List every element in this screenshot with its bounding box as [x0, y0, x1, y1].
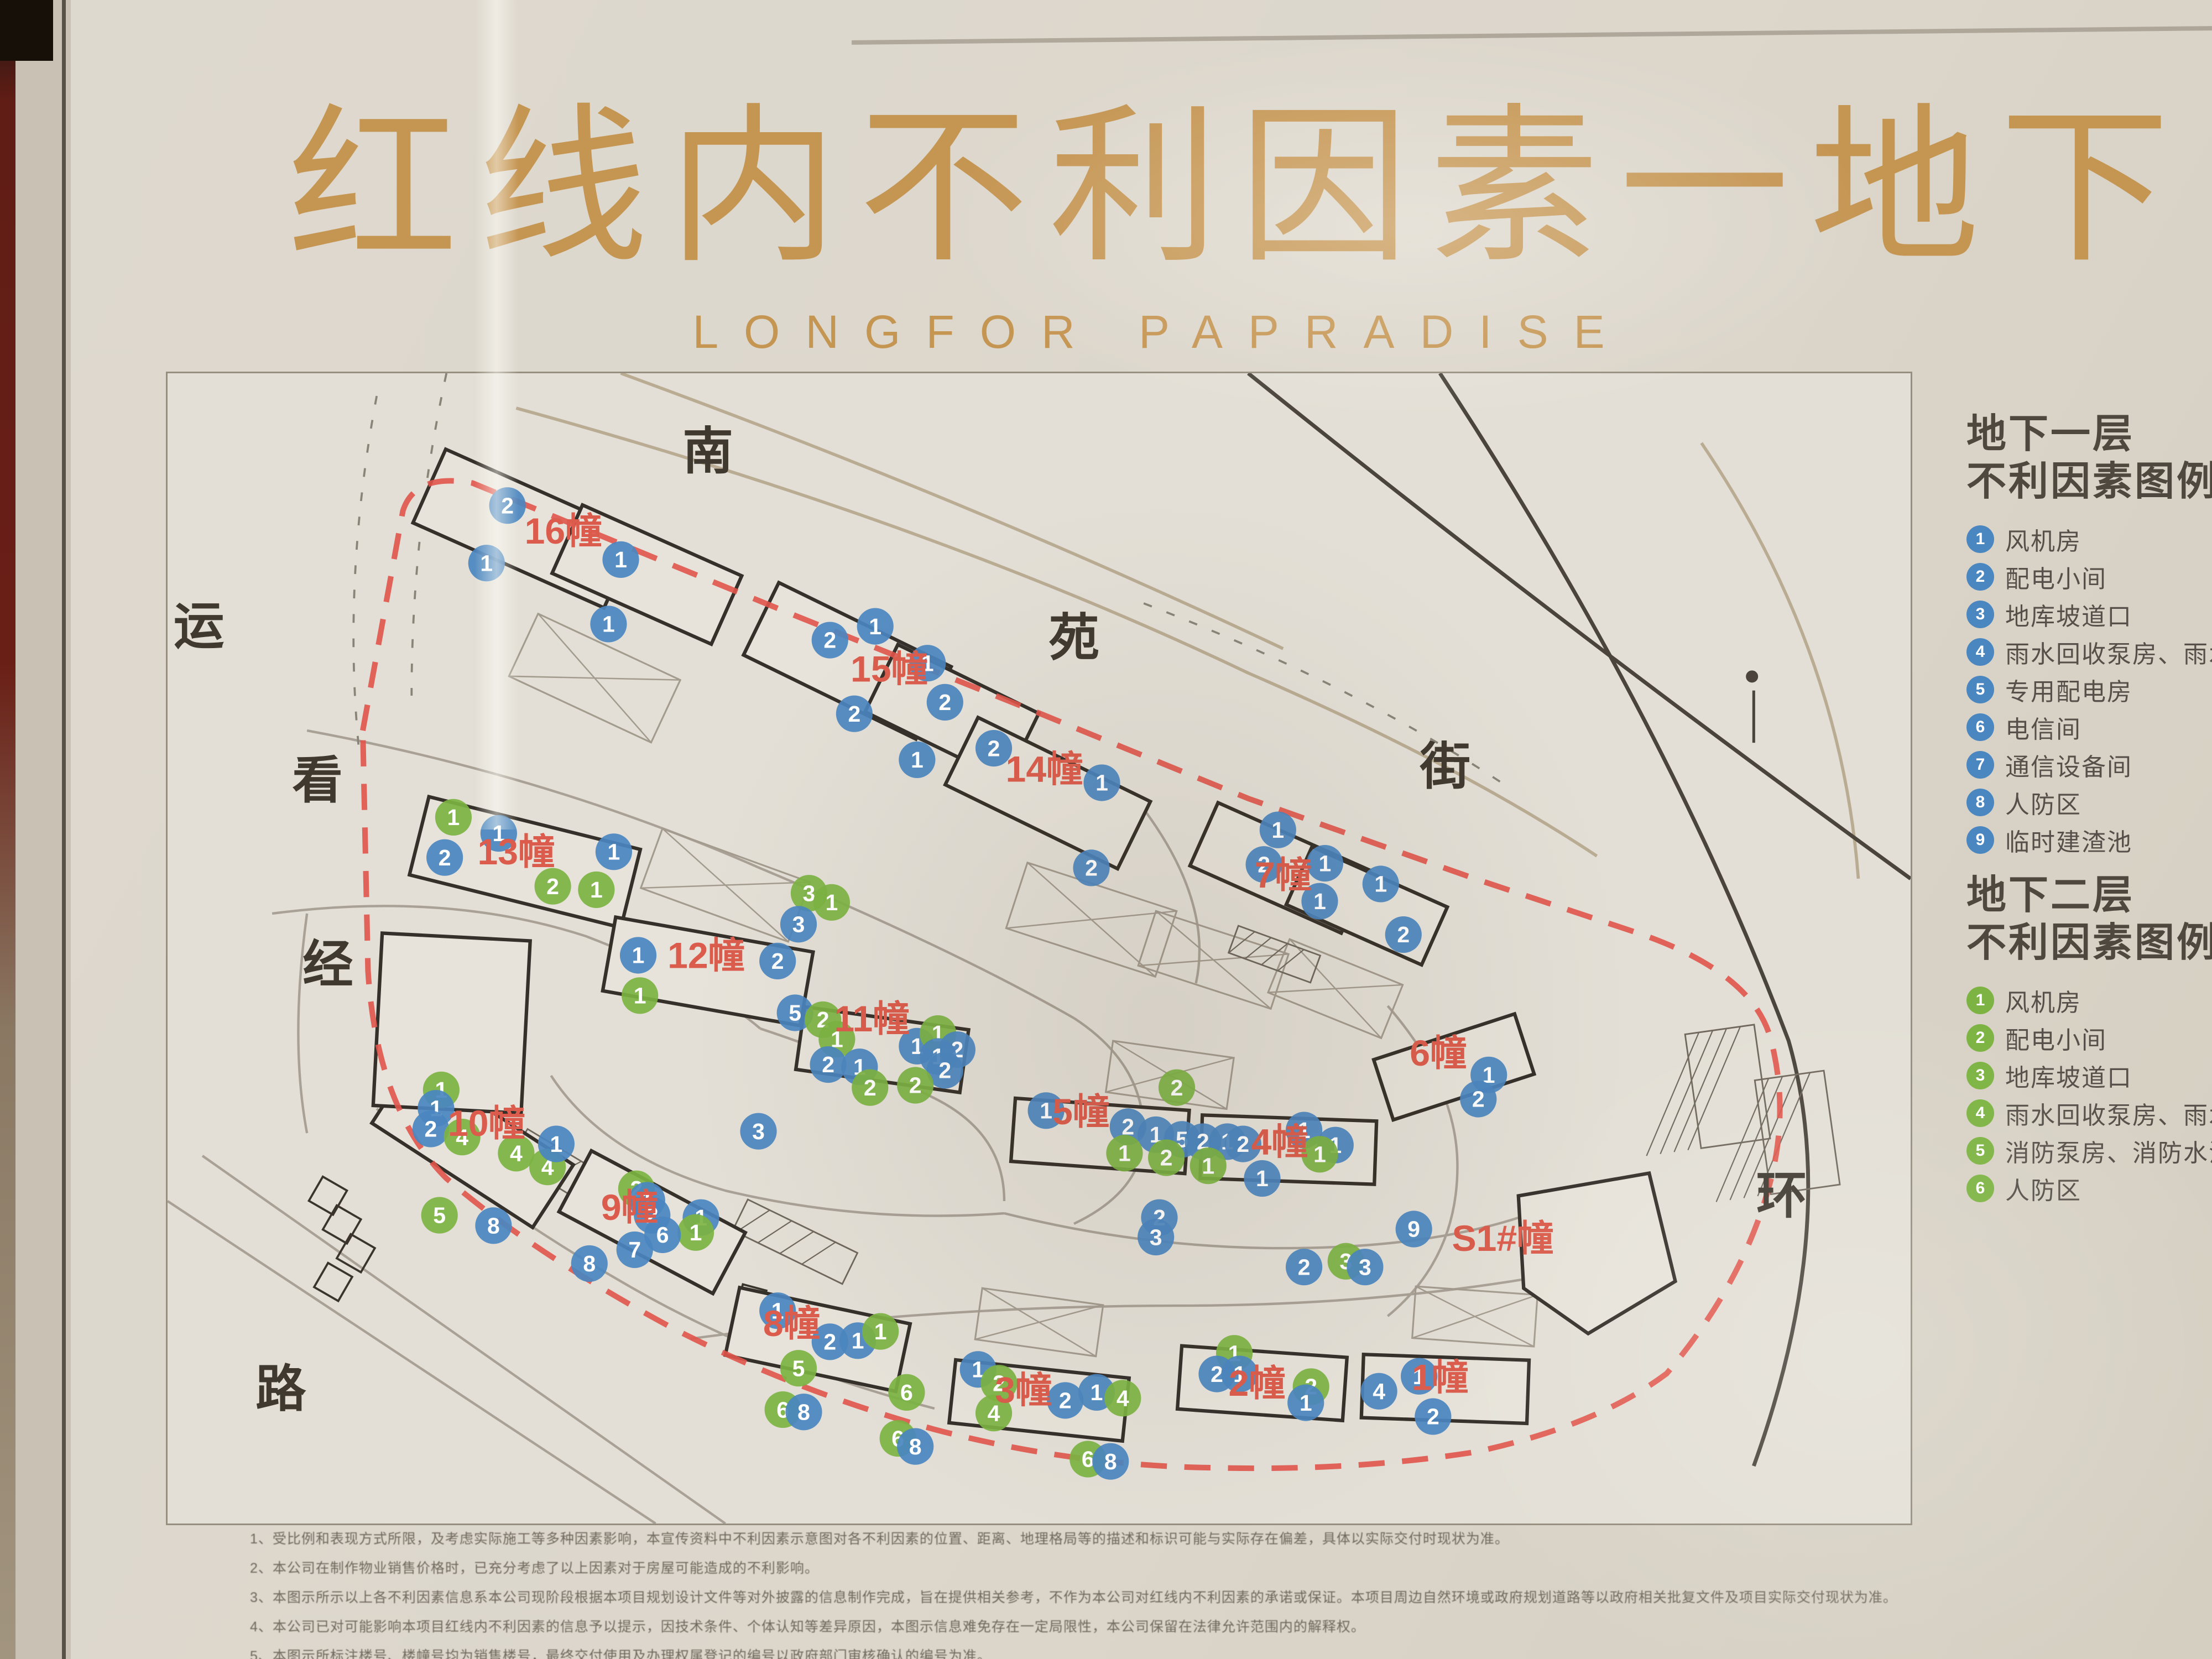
- legend2-label: 地库坡道口: [2005, 1058, 2132, 1093]
- svg-text:2: 2: [823, 1329, 836, 1355]
- svg-text:4: 4: [1117, 1385, 1129, 1411]
- lamp-symbol: [1746, 670, 1758, 743]
- legend2-number-badge: 3: [1966, 1062, 1994, 1089]
- svg-text:9: 9: [1407, 1217, 1420, 1242]
- street-label: 看: [292, 753, 342, 809]
- svg-text:1: 1: [826, 890, 838, 915]
- svg-text:1: 1: [447, 805, 460, 830]
- factor-marker: 7: [617, 1232, 653, 1268]
- street-label: 环: [1756, 1167, 1807, 1224]
- legend1-title-line1: 地下一层: [1966, 410, 2212, 458]
- building-label: S1#幢: [1452, 1218, 1553, 1259]
- legend2-title-line2: 不利因素图例: [1966, 919, 2212, 967]
- factor-marker: 8: [785, 1394, 822, 1430]
- svg-text:1: 1: [550, 1131, 562, 1157]
- svg-text:2: 2: [1237, 1131, 1249, 1157]
- svg-text:6: 6: [900, 1380, 913, 1405]
- legend1-label: 专用配电房: [2005, 672, 2132, 707]
- factor-marker: 3: [1138, 1219, 1174, 1255]
- legend1-label: 地库坡道口: [2005, 597, 2132, 632]
- factor-marker: 2: [759, 943, 796, 979]
- factor-marker: 2: [897, 1067, 933, 1103]
- site-map: 2111211221212112211313112521112122122311…: [166, 372, 1912, 1525]
- factor-marker: 2: [489, 487, 526, 524]
- street-label: 运: [174, 598, 224, 655]
- legend2-label: 配电小间: [2005, 1020, 2107, 1056]
- factor-marker: 2: [1460, 1081, 1496, 1117]
- factor-marker: 8: [475, 1207, 512, 1244]
- legend-basement-1: 地下一层 不利因素图例 1风机房2配电小间3地库坡道口4雨水回收泵房、雨水回收池…: [1966, 410, 2212, 864]
- hatched-strip: [733, 1199, 858, 1284]
- svg-text:1: 1: [608, 839, 620, 864]
- svg-text:2: 2: [1427, 1404, 1439, 1430]
- factor-marker: 1: [1106, 1135, 1142, 1171]
- svg-text:1: 1: [1300, 1390, 1312, 1416]
- svg-text:8: 8: [1104, 1449, 1117, 1474]
- svg-text:1: 1: [1271, 817, 1284, 843]
- factor-marker: 3: [780, 906, 817, 942]
- factor-marker: 9: [1396, 1211, 1432, 1247]
- note-line: 4、本公司已对可能影响本项目红线内不利因素的信息予以提示，因技术条件、个体认知等…: [250, 1620, 2208, 1635]
- factor-marker: 1: [596, 833, 632, 870]
- svg-text:2: 2: [909, 1073, 922, 1098]
- svg-text:2: 2: [823, 628, 836, 653]
- svg-text:1: 1: [911, 747, 924, 773]
- legend2-number-badge: 6: [1966, 1175, 1994, 1202]
- svg-text:2: 2: [988, 735, 1000, 761]
- svg-text:3: 3: [1359, 1254, 1371, 1280]
- factor-marker: 1: [1287, 1385, 1324, 1421]
- svg-text:4: 4: [510, 1140, 523, 1166]
- factor-marker: 8: [897, 1428, 933, 1465]
- building-label: 11幢: [834, 999, 909, 1040]
- legend2-label: 风机房: [2005, 983, 2081, 1018]
- svg-text:1: 1: [1313, 889, 1326, 914]
- svg-text:2: 2: [501, 493, 514, 518]
- legend2-number-badge: 1: [1966, 987, 1994, 1014]
- legend1-number-badge: 9: [1966, 826, 1994, 854]
- building-label: 6幢: [1410, 1033, 1467, 1074]
- svg-text:2: 2: [1085, 855, 1098, 881]
- legend2-label: 消防泵房、消防水池: [2005, 1133, 2212, 1168]
- street-label: 街: [1420, 739, 1470, 795]
- legend2-item: 2配电小间: [1966, 1024, 2212, 1052]
- legend2-item: 1风机房: [1966, 987, 2212, 1014]
- factor-marker: 5: [421, 1197, 458, 1233]
- factor-marker: 1: [622, 977, 658, 1014]
- svg-text:3: 3: [1150, 1224, 1162, 1250]
- legend2-number-badge: 2: [1966, 1024, 1994, 1052]
- building-label: 1幢: [1411, 1358, 1468, 1399]
- hatched-strip: [1229, 926, 1321, 983]
- frame-corner: [0, 0, 53, 61]
- svg-text:1: 1: [1256, 1166, 1269, 1191]
- crossed-box: [975, 1288, 1103, 1356]
- building-label: 13幢: [478, 832, 555, 873]
- building-label: 4幢: [1251, 1121, 1308, 1162]
- svg-text:1: 1: [590, 877, 603, 902]
- factor-marker: 1: [620, 937, 656, 973]
- svg-text:5: 5: [792, 1355, 805, 1381]
- frame-edge-strip: [0, 0, 15, 1659]
- markers-layer: 2111211221212112211313112521112122122311…: [413, 487, 1507, 1480]
- legend1-item: 3地库坡道口: [1966, 601, 2212, 628]
- building-label: 3幢: [995, 1370, 1052, 1411]
- legend1-item: 1风机房: [1966, 525, 2212, 553]
- building-label: 14幢: [1006, 749, 1083, 790]
- factor-marker: 2: [927, 684, 963, 721]
- svg-text:2: 2: [864, 1075, 877, 1100]
- svg-text:2: 2: [1472, 1087, 1485, 1112]
- building-label: 9幢: [601, 1187, 658, 1228]
- svg-text:1: 1: [480, 550, 493, 576]
- factor-marker: 1: [1363, 865, 1399, 902]
- legend1-number-badge: 2: [1966, 563, 1994, 591]
- legend1-item: 2配电小间: [1966, 563, 2212, 591]
- legend1-item: 5专用配电房: [1966, 676, 2212, 703]
- factor-marker: 1: [468, 545, 505, 581]
- factor-marker: 2: [812, 622, 848, 658]
- factor-marker: 2: [1073, 849, 1109, 886]
- factor-marker: 1: [862, 1313, 899, 1350]
- factor-marker: 2: [810, 1046, 847, 1083]
- legend1-number-badge: 1: [1966, 525, 1994, 553]
- factor-marker: 5: [780, 1350, 817, 1386]
- street-label: 苑: [1048, 610, 1099, 666]
- svg-text:1: 1: [874, 1319, 887, 1344]
- page-subtitle: LONGFOR PAPRADISE: [310, 305, 2013, 359]
- legend1-number-badge: 7: [1966, 751, 1994, 779]
- note-line: 5、本图示所标注楼号、楼幢号均为销售楼号，最终交付使用及办理权属登记的编号以政府…: [250, 1649, 2208, 1659]
- legend1-item: 7通信设备间: [1966, 751, 2212, 779]
- svg-text:1: 1: [1091, 1380, 1103, 1405]
- note-line: 2、本公司在制作物业销售价格时，已充分考虑了以上因素对于房屋可能造成的不利影响。: [250, 1561, 2208, 1576]
- legend1-number-badge: 3: [1966, 601, 1994, 628]
- legend2-item: 3地库坡道口: [1966, 1062, 2212, 1089]
- factor-marker: 1: [602, 541, 639, 578]
- factor-marker: 2: [1286, 1249, 1322, 1285]
- factor-marker: 1: [813, 884, 850, 921]
- legend1-list: 1风机房2配电小间3地库坡道口4雨水回收泵房、雨水回收池5专用配电房6电信间7通…: [1966, 525, 2212, 854]
- svg-text:2: 2: [938, 1058, 951, 1083]
- factor-marker: 4: [1361, 1373, 1397, 1410]
- factor-marker: 3: [740, 1113, 776, 1150]
- svg-text:1: 1: [614, 547, 627, 572]
- svg-text:1: 1: [1374, 872, 1387, 897]
- legend1-item: 8人防区: [1966, 789, 2212, 816]
- hatched-strip: [1631, 1025, 1770, 1156]
- crossed-box: [1412, 1286, 1538, 1347]
- buildings-layer: [309, 449, 1840, 1441]
- svg-text:1: 1: [869, 614, 881, 639]
- svg-text:1: 1: [632, 943, 645, 968]
- svg-text:8: 8: [583, 1251, 596, 1276]
- svg-text:3: 3: [752, 1119, 765, 1144]
- legend1-label: 人防区: [2005, 785, 2081, 820]
- legend1-label: 通信设备间: [2005, 747, 2132, 782]
- legend2-item: 6人防区: [1966, 1175, 2212, 1202]
- legend1-label: 配电小间: [2005, 559, 2107, 594]
- svg-text:1: 1: [1319, 851, 1332, 876]
- svg-text:1: 1: [602, 612, 615, 637]
- factor-marker: 1: [1307, 845, 1343, 881]
- building-label: 12幢: [667, 935, 745, 976]
- legend2-title-line1: 地下二层: [1966, 872, 2212, 919]
- legend2-number-badge: 4: [1966, 1099, 1994, 1127]
- factor-marker: 1: [590, 606, 627, 642]
- legend1-number-badge: 5: [1966, 676, 1994, 703]
- legend1-label: 临时建渣池: [2005, 822, 2132, 858]
- factor-marker: 1: [538, 1126, 575, 1162]
- svg-text:1: 1: [690, 1220, 702, 1245]
- svg-text:1: 1: [1095, 770, 1108, 796]
- legend2-label: 人防区: [2005, 1171, 2081, 1206]
- street-label: 路: [255, 1361, 306, 1417]
- factor-marker: 2: [836, 696, 873, 732]
- svg-text:2: 2: [1171, 1075, 1183, 1100]
- factor-marker: 6: [888, 1374, 925, 1411]
- svg-text:7: 7: [628, 1237, 641, 1262]
- factor-marker: 2: [1415, 1398, 1451, 1434]
- svg-text:1: 1: [1118, 1140, 1131, 1166]
- svg-text:6: 6: [656, 1222, 669, 1248]
- site-map-svg: 2111211221212112211313112521112122122311…: [168, 373, 1911, 1524]
- building-label: 2幢: [1229, 1363, 1286, 1404]
- legend1-label: 雨水回收泵房、雨水回收池: [2005, 634, 2212, 670]
- building-label: 10幢: [448, 1103, 525, 1144]
- factor-marker: 2: [534, 868, 571, 905]
- legend2-number-badge: 5: [1966, 1137, 1994, 1165]
- svg-text:1: 1: [1202, 1153, 1214, 1178]
- building-label: 15幢: [851, 649, 928, 690]
- legend1-item: 9临时建渣池: [1966, 826, 2212, 854]
- legend1-number-badge: 6: [1966, 713, 1994, 741]
- svg-text:2: 2: [822, 1052, 834, 1077]
- svg-text:2: 2: [439, 845, 451, 870]
- svg-text:1: 1: [1313, 1142, 1326, 1167]
- boundary-road-line: [1248, 373, 1911, 879]
- svg-text:2: 2: [848, 701, 860, 727]
- svg-text:2: 2: [1059, 1388, 1072, 1413]
- svg-text:2: 2: [1397, 922, 1410, 947]
- factor-marker: 1: [1260, 812, 1296, 848]
- factor-marker: 1: [1083, 764, 1120, 801]
- legend1-item: 6电信间: [1966, 713, 2212, 741]
- road-line: [1702, 443, 1859, 879]
- legend2-item: 4雨水回收泵房、雨水回收池: [1966, 1099, 2212, 1127]
- factor-marker: 4: [1104, 1380, 1141, 1416]
- legend2-list: 1风机房2配电小间3地库坡道口4雨水回收泵房、雨水回收池5消防泵房、消防水池6人…: [1966, 987, 2212, 1202]
- factor-marker: 1: [857, 608, 894, 645]
- factor-marker: 1: [1244, 1160, 1280, 1197]
- frame-divider-line: [62, 0, 66, 1659]
- factor-marker: 2: [1148, 1139, 1185, 1176]
- note-line: 1、受比例和表现方式所限，及考虑实际施工等多种因素影响，本宣传资料中不利因素示意…: [250, 1532, 2208, 1547]
- parcel-dotted-line: [353, 396, 377, 753]
- street-label: 经: [302, 936, 353, 993]
- factor-marker: 2: [1385, 916, 1422, 953]
- svg-text:2: 2: [546, 874, 559, 899]
- legend2-label: 雨水回收泵房、雨水回收池: [2005, 1095, 2212, 1131]
- svg-text:2: 2: [938, 690, 951, 715]
- svg-text:2: 2: [425, 1117, 437, 1142]
- legend1-label: 风机房: [2005, 521, 2081, 557]
- legend2-item: 5消防泵房、消防水池: [1966, 1137, 2212, 1165]
- disclaimer-notes: 1、受比例和表现方式所限，及考虑实际施工等多种因素影响，本宣传资料中不利因素示意…: [250, 1532, 2208, 1659]
- legend1-item: 4雨水回收泵房、雨水回收池: [1966, 638, 2212, 666]
- factor-marker: 3: [1347, 1249, 1383, 1285]
- factor-marker: 2: [413, 1110, 449, 1147]
- legend-basement-2: 地下二层 不利因素图例 1风机房2配电小间3地库坡道口4雨水回收泵房、雨水回收池…: [1966, 872, 2212, 1212]
- factor-marker: 1: [1190, 1147, 1227, 1184]
- factor-marker: 2: [1047, 1382, 1083, 1418]
- svg-text:2: 2: [1160, 1145, 1173, 1171]
- road-line: [1144, 809, 1199, 983]
- legend1-number-badge: 4: [1966, 638, 1994, 666]
- svg-text:1: 1: [1040, 1098, 1052, 1123]
- svg-text:8: 8: [909, 1434, 922, 1459]
- svg-text:2: 2: [1298, 1254, 1311, 1280]
- factor-marker: 2: [426, 839, 463, 876]
- building-label: 7幢: [1255, 855, 1312, 896]
- svg-text:8: 8: [487, 1213, 500, 1238]
- service-box: [314, 1263, 352, 1301]
- street-label: 南: [682, 424, 733, 480]
- building-label: 5幢: [1052, 1092, 1109, 1133]
- factor-marker: 1: [899, 742, 935, 778]
- factor-marker: 8: [571, 1245, 608, 1282]
- svg-text:3: 3: [792, 912, 805, 937]
- factor-marker: 2: [1159, 1070, 1195, 1106]
- building-label: 16幢: [525, 511, 602, 552]
- site-plan-poster-photo: 红线内不利因素一地下 LONGFOR PAPRADISE 21112112212…: [0, 0, 2212, 1659]
- svg-text:5: 5: [433, 1203, 446, 1228]
- factor-marker: 1: [578, 872, 614, 908]
- factor-marker: 8: [1092, 1443, 1129, 1480]
- note-line: 3、本图示所示以上各不利因素信息系本公司现阶段根据本项目规划设计文件等对外披露的…: [250, 1590, 2208, 1605]
- legend1-number-badge: 8: [1966, 789, 1994, 816]
- factor-marker: 1: [677, 1214, 714, 1251]
- svg-text:2: 2: [771, 948, 784, 974]
- svg-text:5: 5: [789, 1000, 801, 1026]
- legend1-label: 电信间: [2005, 709, 2081, 745]
- svg-text:6: 6: [1082, 1447, 1094, 1472]
- building-label: 8幢: [763, 1303, 820, 1344]
- svg-text:1: 1: [634, 983, 646, 1008]
- factor-marker: 1: [435, 799, 472, 836]
- building-footprint: [945, 717, 1150, 868]
- legend1-title-line2: 不利因素图例: [1966, 458, 2212, 505]
- factor-marker: 2: [852, 1070, 888, 1106]
- svg-text:8: 8: [797, 1399, 810, 1425]
- svg-text:4: 4: [1373, 1379, 1385, 1404]
- page-title: 红线内不利因素一地下: [276, 49, 2201, 286]
